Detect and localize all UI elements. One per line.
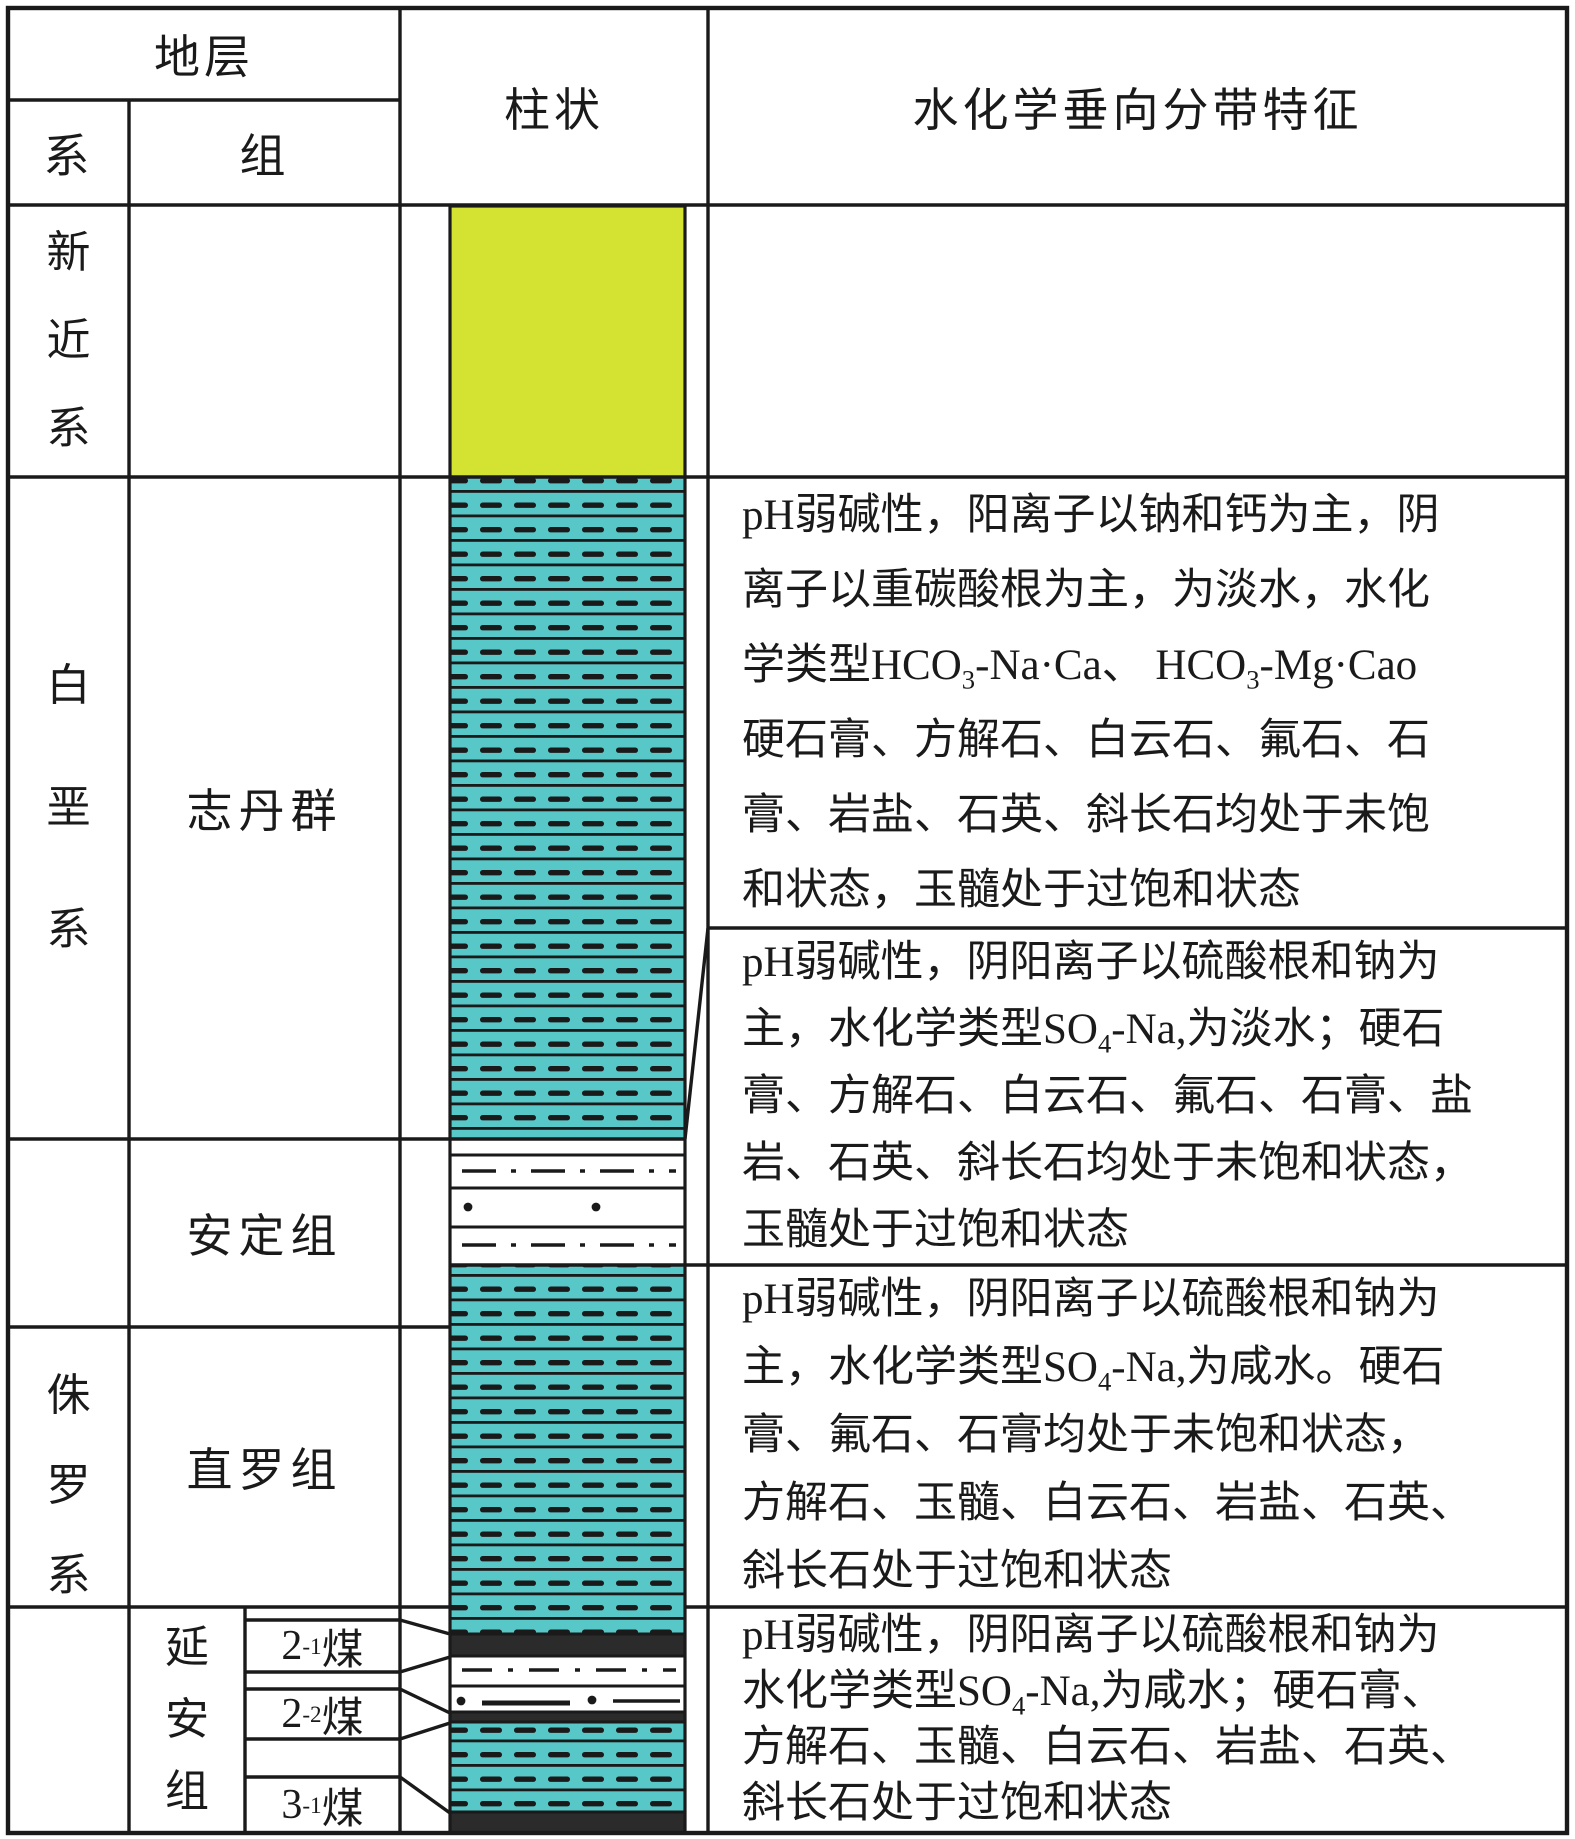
desc-line: pH弱碱性，阳离子以钠和钙为主，阴 bbox=[742, 478, 1575, 553]
leader-coal-2-1-bottom bbox=[400, 1657, 450, 1672]
desc-block-zhiluo: pH弱碱性，阴阳离子以硫酸根和钠为 主，水化学类型SO4-Na,为咸水。硬石 膏… bbox=[708, 1265, 1575, 1607]
system-neogene-label: 新近系 bbox=[46, 209, 92, 473]
formation-anding: 安定组 bbox=[129, 1139, 400, 1327]
system-jurassic-label: 侏罗系 bbox=[46, 1351, 92, 1621]
dot bbox=[464, 1203, 473, 1212]
dot bbox=[457, 1697, 466, 1706]
desc-line: 膏、氟石、石膏均处于未饱和状态， bbox=[742, 1402, 1575, 1470]
desc-line: 岩、石英、斜长石均处于未饱和状态， bbox=[742, 1130, 1575, 1197]
desc-line: 水化学类型SO4-Na,为咸水；硬石膏、 bbox=[742, 1664, 1575, 1720]
desc-block-zhidan-lower-anding: pH弱碱性，阴阳离子以硫酸根和钠为 主，水化学类型SO4-Na,为淡水；硬石 膏… bbox=[708, 928, 1575, 1265]
neogene-sand-layer bbox=[450, 206, 685, 477]
leader-coal-2-1-top bbox=[400, 1620, 450, 1634]
zhidan-aquifer-layer bbox=[450, 477, 685, 1139]
desc-line: 主，水化学类型SO4-Na,为咸水。硬石 bbox=[742, 1334, 1575, 1402]
formation-zhidan-group: 志丹群 bbox=[129, 477, 400, 1139]
header-formation: 组 bbox=[129, 100, 400, 205]
system-neogene: 新近系 bbox=[8, 205, 129, 477]
desc-line: 玉髓处于过饱和状态 bbox=[742, 1197, 1575, 1264]
desc-line: 膏、方解石、白云石、氟石、石膏、盐 bbox=[742, 1063, 1575, 1130]
system-jurassic: 侏罗系 bbox=[8, 1139, 129, 1833]
dot bbox=[588, 1696, 597, 1705]
formation-yanan: 延安组 bbox=[129, 1607, 245, 1833]
header-system: 系 bbox=[8, 100, 129, 205]
coal-seam-2-1-label: 2-1煤 bbox=[245, 1620, 400, 1672]
zhiluo-aquifer-layer bbox=[450, 1265, 685, 1634]
formation-yanan-label: 延安组 bbox=[164, 1612, 210, 1828]
leader-coal-3-1-top bbox=[400, 1777, 450, 1813]
desc-line: 主，水化学类型SO4-Na,为淡水；硬石 bbox=[742, 996, 1575, 1063]
desc-line: 方解石、玉髓、白云石、岩盐、石英、 bbox=[742, 1720, 1575, 1776]
desc-line: 和状态，玉髓处于过饱和状态 bbox=[742, 853, 1575, 928]
desc-line: 膏、岩盐、石英、斜长石均处于未饱 bbox=[742, 778, 1575, 853]
coal-seam-3-1-layer bbox=[450, 1812, 685, 1833]
desc-block-yanan: pH弱碱性，阴阳离子以硫酸根和钠为 水化学类型SO4-Na,为咸水；硬石膏、 方… bbox=[708, 1607, 1575, 1833]
coal-seam-2-1-layer bbox=[450, 1634, 685, 1656]
desc-line: 斜长石处于过饱和状态 bbox=[742, 1538, 1575, 1606]
header-hydrochem: 水化学垂向分带特征 bbox=[708, 8, 1567, 205]
stratigraphic-hydrochemistry-diagram: { "header": { "stratum": "地层", "system":… bbox=[0, 0, 1575, 1839]
leader-coal-2-2-bottom bbox=[400, 1723, 450, 1739]
desc-line: pH弱碱性，阴阳离子以硫酸根和钠为 bbox=[742, 1266, 1575, 1334]
dot bbox=[592, 1203, 601, 1212]
desc-line: 斜长石处于过饱和状态 bbox=[742, 1776, 1575, 1832]
leader-desc2-to-column bbox=[685, 928, 708, 1139]
formation-zhiluo: 直罗组 bbox=[129, 1327, 400, 1607]
lithology-column bbox=[450, 206, 685, 1833]
desc-line: 方解石、玉髓、白云石、岩盐、石英、 bbox=[742, 1470, 1575, 1538]
leader-coal-2-2-top bbox=[400, 1689, 450, 1713]
yanan-aquifer-layer bbox=[450, 1722, 685, 1812]
desc-line: 离子以重碳酸根为主，为淡水，水化 bbox=[742, 553, 1575, 628]
system-cretaceous: 白垩系 bbox=[8, 477, 129, 1139]
header-column: 柱状 bbox=[400, 8, 708, 205]
coal-seam-3-1-label: 3-1煤 bbox=[245, 1777, 400, 1833]
desc-line: 学类型HCO3-Na·Ca、 HCO3-Mg·Cao bbox=[742, 628, 1575, 703]
desc-line: 硬石膏、方解石、白云石、氟石、石 bbox=[742, 703, 1575, 778]
desc-line: pH弱碱性，阴阳离子以硫酸根和钠为 bbox=[742, 929, 1575, 996]
desc-block-zhidan-upper: pH弱碱性，阳离子以钠和钙为主，阴 离子以重碳酸根为主，为淡水，水化 学类型HC… bbox=[708, 477, 1575, 928]
desc-line: pH弱碱性，阴阳离子以硫酸根和钠为 bbox=[742, 1608, 1575, 1664]
header-stratum: 地层 bbox=[8, 8, 400, 100]
system-cretaceous-label: 白垩系 bbox=[46, 625, 92, 991]
coal-seam-2-2-label: 2-2煤 bbox=[245, 1689, 400, 1739]
